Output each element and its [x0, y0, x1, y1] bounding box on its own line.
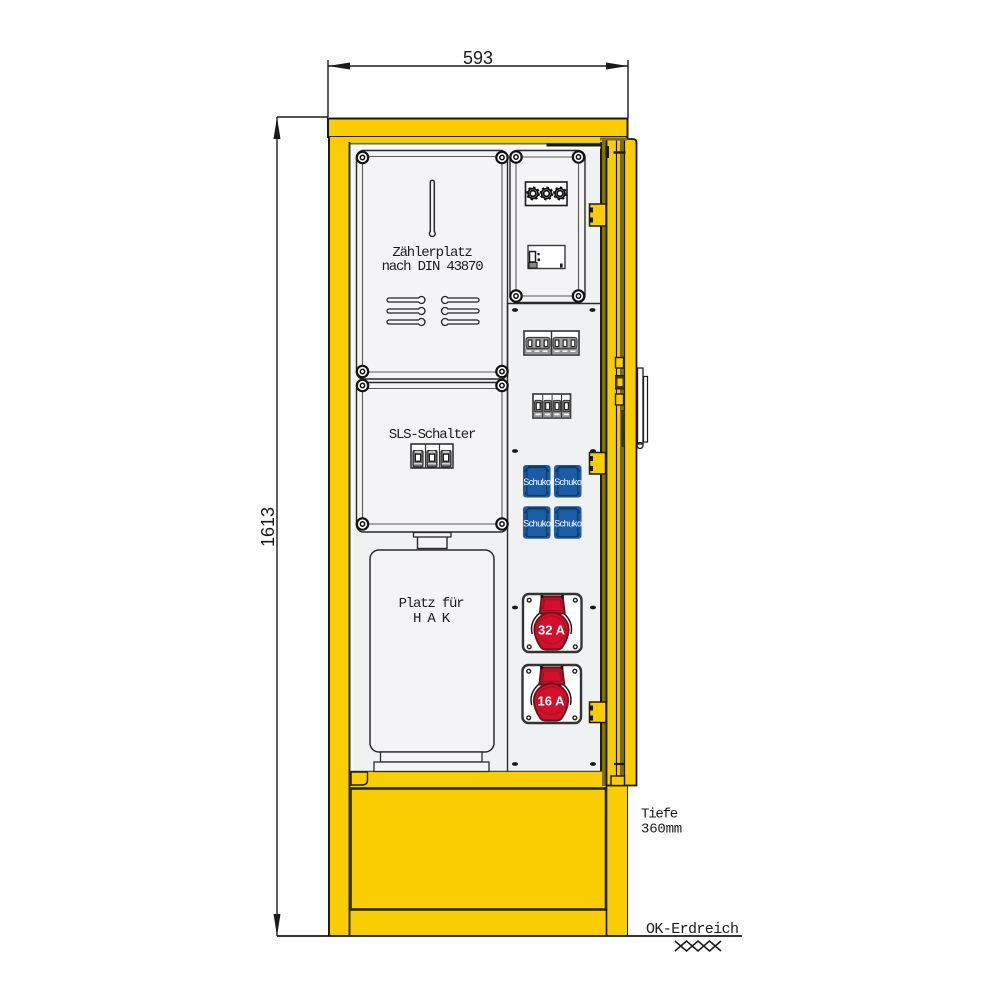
svg-text:nach DIN 43870: nach DIN 43870: [382, 259, 484, 275]
svg-text:Platz für: Platz für: [399, 596, 465, 612]
svg-text:Tiefe: Tiefe: [641, 807, 678, 823]
svg-text:32 A: 32 A: [538, 623, 566, 638]
svg-text:SLS-Schalter: SLS-Schalter: [389, 427, 476, 443]
svg-text:593: 593: [463, 48, 493, 68]
svg-text:OK-Erdreich: OK-Erdreich: [646, 921, 738, 938]
svg-text:360mm: 360mm: [641, 822, 682, 838]
svg-text:H A K: H A K: [413, 611, 451, 627]
svg-text:16 A: 16 A: [538, 694, 566, 709]
svg-text:1613: 1613: [258, 507, 278, 547]
